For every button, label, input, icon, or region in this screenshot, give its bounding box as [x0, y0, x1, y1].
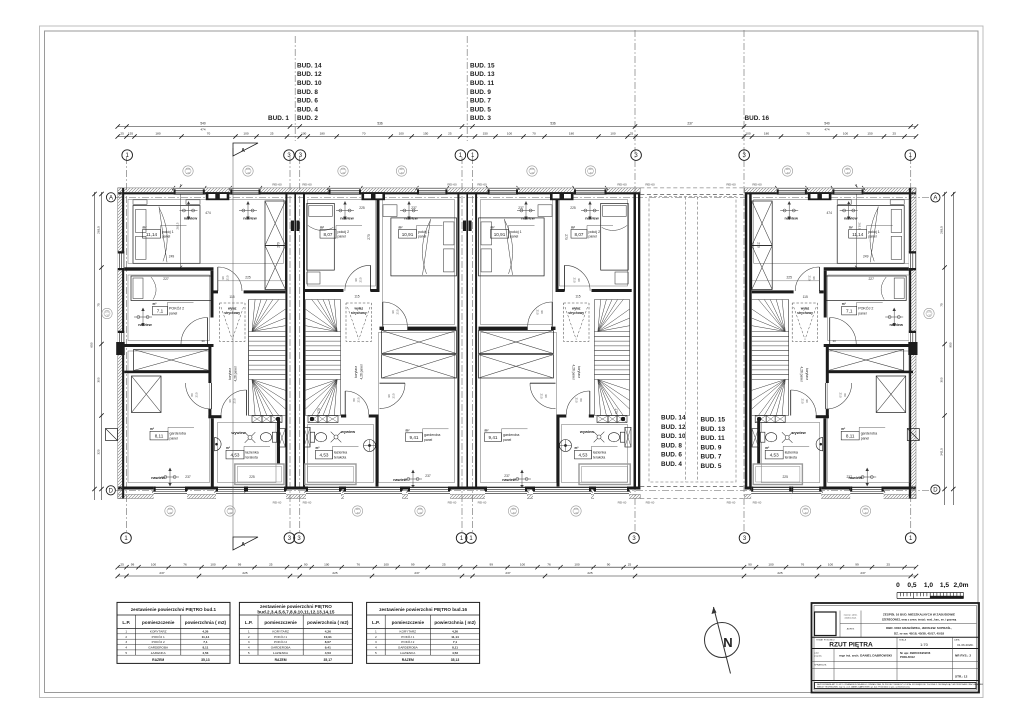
svg-text:WIEDZY TECHNICZNEJ. mgr inż. a: WIEDZY TECHNICZNEJ. mgr inż. arch. DANIE… — [817, 686, 910, 689]
svg-text:nawiew: nawiew — [889, 323, 903, 327]
svg-text:wyłaz: wyłaz — [354, 307, 364, 311]
svg-text:panel: panel — [858, 312, 867, 316]
svg-text:170: 170 — [317, 408, 321, 414]
svg-text:90: 90 — [304, 562, 308, 566]
svg-text:2,0m: 2,0m — [953, 582, 968, 589]
svg-text:90: 90 — [544, 394, 548, 398]
svg-text:BUD. 8: BUD. 8 — [297, 89, 318, 96]
svg-text:wywiew: wywiew — [340, 430, 355, 434]
svg-text:210: 210 — [801, 398, 805, 403]
svg-text:249: 249 — [863, 255, 869, 259]
svg-text:pokój 2: pokój 2 — [589, 230, 601, 234]
svg-text:80: 80 — [579, 398, 583, 402]
svg-text:terakota: terakota — [246, 456, 258, 460]
svg-text:nawiew: nawiew — [844, 217, 858, 221]
svg-text:projektu: projektu — [814, 655, 823, 658]
svg-text:237: 237 — [185, 475, 191, 479]
svg-text:100: 100 — [384, 562, 389, 566]
svg-text:garderoba: garderoba — [861, 432, 877, 436]
svg-text:25: 25 — [628, 562, 632, 566]
svg-text:SZEREGOWEJ, wraz z zewn. insta: SZEREGOWEJ, wraz z zewn. instal.: wod., … — [882, 618, 957, 622]
svg-text:panel: panel — [861, 437, 870, 441]
svg-text:powierzchnia ( m2): powierzchnia ( m2) — [185, 620, 227, 625]
svg-text:237: 237 — [505, 571, 510, 575]
svg-text:11,14: 11,14 — [202, 635, 210, 639]
svg-text:180: 180 — [155, 132, 160, 136]
svg-text:m²: m² — [841, 427, 845, 431]
svg-text:474: 474 — [824, 128, 829, 132]
svg-text:BUD. 6: BUD. 6 — [661, 452, 682, 459]
svg-text:N: N — [723, 635, 732, 650]
svg-text:BUD. 16: BUD. 16 — [745, 115, 770, 122]
svg-text:mgr inż. arch. DANIEL DĄBROWSK: mgr inż. arch. DANIEL DĄBROWSKI — [839, 653, 892, 657]
svg-text:łazienka: łazienka — [593, 451, 606, 455]
svg-text:8,07: 8,07 — [575, 232, 584, 237]
svg-text:237: 237 — [504, 474, 510, 478]
svg-text:1,5: 1,5 — [940, 582, 949, 589]
svg-text:100: 100 — [168, 507, 173, 511]
svg-text:m²: m² — [491, 225, 495, 229]
svg-text:4,26 panel: 4,26 panel — [234, 366, 238, 381]
svg-text:POKÓJ 2: POKÓJ 2 — [169, 306, 184, 311]
svg-text:3: 3 — [248, 640, 250, 644]
svg-text:panel: panel — [589, 235, 598, 239]
svg-text:474: 474 — [826, 211, 832, 215]
svg-text:garderoba: garderoba — [503, 433, 519, 437]
svg-text:łazienka: łazienka — [334, 451, 347, 455]
svg-text:+30: +30 — [418, 511, 423, 515]
svg-text:2: 2 — [375, 635, 377, 639]
svg-text:zestawienie powierzchni PIĘTRO: zestawienie powierzchni PIĘTRO bud.16 — [379, 607, 467, 612]
svg-text:225: 225 — [245, 276, 251, 280]
svg-text:pomieszczenie: pomieszczenie — [392, 620, 425, 625]
svg-text:m²: m² — [143, 225, 147, 229]
svg-text:155: 155 — [128, 132, 133, 136]
svg-text:4,53: 4,53 — [452, 651, 458, 655]
svg-text:panel: panel — [503, 438, 512, 442]
svg-text:BUD. 12: BUD. 12 — [661, 424, 686, 431]
svg-text:1: 1 — [375, 630, 377, 634]
svg-text:DZ. nr ew. 45/18, 45/38, 45/17: DZ. nr ew. 45/18, 45/38, 45/17, 45/18 — [894, 631, 944, 635]
svg-text:panel: panel — [424, 438, 433, 442]
svg-text:100: 100 — [399, 132, 404, 136]
svg-text:5: 5 — [125, 651, 127, 655]
svg-text:zestawienie powierzchni PIĘTRO: zestawienie powierzchni PIĘTRO bud.1 — [131, 607, 217, 612]
svg-text:270: 270 — [277, 242, 281, 248]
svg-text:autor: autor — [814, 652, 819, 655]
svg-text:474: 474 — [205, 211, 211, 215]
svg-text:3: 3 — [375, 640, 377, 644]
svg-text:25: 25 — [630, 132, 634, 136]
svg-text:100: 100 — [803, 507, 808, 511]
svg-text:536: 536 — [377, 121, 383, 125]
svg-text:BUD. 14: BUD. 14 — [661, 415, 686, 422]
svg-text:powierzchnia ( m2): powierzchnia ( m2) — [434, 620, 476, 625]
svg-text:terakota: terakota — [334, 456, 346, 460]
svg-text:m²: m² — [571, 225, 575, 229]
svg-text:KORYTARZ: KORYTARZ — [150, 630, 167, 634]
svg-text:+30: +30 — [845, 171, 850, 175]
svg-text:BUD. 13: BUD. 13 — [701, 426, 726, 433]
svg-text:terakota: terakota — [785, 456, 797, 460]
svg-text:A: A — [933, 196, 937, 202]
svg-text:powierzchnia ( m2): powierzchnia ( m2) — [307, 620, 349, 625]
svg-text:210: 210 — [573, 277, 577, 282]
svg-text:REI-60: REI-60 — [447, 182, 457, 186]
svg-text:11,14: 11,14 — [451, 635, 459, 639]
svg-text:L.P.: L.P. — [245, 620, 253, 625]
svg-text:+30: +30 — [785, 171, 790, 175]
svg-text:225: 225 — [359, 206, 365, 210]
svg-text:320: 320 — [97, 449, 101, 454]
svg-text:RZUT PIĘTRA: RZUT PIĘTRA — [829, 642, 873, 649]
svg-text:25: 25 — [886, 562, 890, 566]
svg-text:1,0: 1,0 — [924, 582, 933, 589]
svg-text:225: 225 — [570, 206, 576, 210]
svg-text:REI-60: REI-60 — [272, 182, 282, 186]
svg-text:pomieszczenie: pomieszczenie — [264, 620, 297, 625]
svg-text:BUD. 10: BUD. 10 — [297, 80, 322, 87]
svg-text:SPRAWDZIŁ: SPRAWDZIŁ — [814, 664, 827, 667]
svg-text:100: 100 — [530, 167, 535, 171]
svg-text:210: 210 — [195, 392, 199, 397]
svg-text:POKÓJ 1: POKÓJ 1 — [152, 634, 165, 639]
svg-text:10,91: 10,91 — [494, 232, 506, 237]
svg-text:540: 540 — [200, 121, 206, 125]
svg-text:SKALA: SKALA — [899, 638, 907, 641]
svg-text:536: 536 — [550, 121, 556, 125]
svg-text:8,11: 8,11 — [452, 646, 458, 650]
svg-text:strychowy: strychowy — [351, 311, 367, 315]
svg-text:m²: m² — [150, 427, 154, 431]
svg-text:100: 100 — [843, 132, 848, 136]
svg-text:270: 270 — [757, 242, 761, 248]
svg-text:100: 100 — [399, 167, 404, 171]
svg-text:150: 150 — [483, 132, 488, 136]
svg-text:540: 540 — [824, 121, 830, 125]
svg-text:REI-60: REI-60 — [273, 500, 282, 504]
svg-text:300: 300 — [97, 377, 101, 382]
svg-text:225: 225 — [242, 571, 247, 575]
svg-text:REI-60: REI-60 — [477, 182, 487, 186]
svg-text:90: 90 — [812, 276, 816, 280]
svg-text:nazwa i adres: nazwa i adres — [844, 614, 858, 617]
svg-text:D: D — [933, 488, 938, 494]
svg-text:+30: +30 — [341, 171, 346, 175]
svg-text:100: 100 — [863, 507, 868, 511]
svg-text:m²: m² — [399, 225, 403, 229]
svg-text:BUD. 10: BUD. 10 — [661, 433, 686, 440]
svg-text:BUD. 9: BUD. 9 — [701, 444, 722, 451]
svg-text:7,1: 7,1 — [846, 309, 853, 314]
svg-text:100: 100 — [105, 310, 110, 314]
svg-text:GARDEROBA: GARDEROBA — [271, 646, 292, 650]
svg-text:1: 1 — [248, 630, 250, 634]
svg-text:DATA: DATA — [954, 638, 960, 641]
svg-text:100: 100 — [418, 507, 423, 511]
svg-text:225: 225 — [587, 571, 592, 575]
svg-text:nawiew: nawiew — [404, 217, 418, 221]
svg-text:pokój 1: pokój 1 — [162, 230, 174, 234]
svg-text:75: 75 — [97, 303, 101, 307]
svg-text:99: 99 — [238, 562, 242, 566]
svg-text:+30: +30 — [530, 171, 535, 175]
svg-text:1: 1 — [125, 630, 127, 634]
svg-text:POKÓJ 1: POKÓJ 1 — [274, 634, 287, 639]
svg-text:263,5: 263,5 — [176, 222, 180, 229]
svg-text:4: 4 — [125, 646, 127, 650]
svg-text:nawiew: nawiew — [393, 478, 407, 482]
svg-text:90: 90 — [540, 310, 544, 314]
svg-text:263,5: 263,5 — [858, 223, 862, 230]
svg-text:pokój 1: pokój 1 — [418, 230, 430, 234]
svg-text:L.P.: L.P. — [122, 620, 130, 625]
svg-text:99: 99 — [411, 562, 415, 566]
svg-text:+30: +30 — [168, 511, 173, 515]
svg-text:4: 4 — [375, 646, 377, 650]
svg-text:225: 225 — [786, 276, 792, 280]
svg-text:90: 90 — [607, 562, 611, 566]
svg-text:210: 210 — [226, 275, 230, 280]
svg-text:210: 210 — [536, 309, 540, 314]
svg-text:0: 0 — [896, 582, 900, 589]
svg-text:BUD. 13: BUD. 13 — [470, 71, 495, 78]
svg-text:4,53: 4,53 — [231, 453, 240, 458]
svg-text:100: 100 — [785, 167, 790, 171]
svg-text:90: 90 — [354, 278, 358, 282]
svg-text:263,5: 263,5 — [97, 226, 101, 234]
svg-text:strychowy: strychowy — [224, 311, 240, 315]
svg-text:BUD. 11: BUD. 11 — [701, 435, 726, 442]
svg-text:BUD. 7: BUD. 7 — [701, 454, 722, 461]
svg-text:99: 99 — [131, 562, 135, 566]
svg-text:8,07: 8,07 — [325, 640, 331, 644]
svg-text:REI-60: REI-60 — [448, 500, 457, 504]
svg-text:RAZEM: RAZEM — [275, 658, 287, 662]
svg-text:BUD. 12: BUD. 12 — [297, 71, 322, 78]
svg-text:4,26: 4,26 — [202, 630, 208, 634]
svg-text:225: 225 — [782, 475, 788, 479]
svg-text:210: 210 — [396, 309, 400, 314]
svg-text:76: 76 — [356, 562, 360, 566]
svg-text:100: 100 — [511, 507, 516, 511]
svg-text:10,91: 10,91 — [402, 232, 414, 237]
svg-text:35,17: 35,17 — [324, 658, 333, 662]
svg-text:panel: panel — [868, 235, 877, 239]
svg-text:+30: +30 — [511, 511, 516, 515]
svg-text:11,14: 11,14 — [146, 232, 158, 237]
svg-text:+30: +30 — [588, 171, 593, 175]
svg-text:BUD. 2: BUD. 2 — [297, 115, 318, 122]
svg-text:210: 210 — [359, 277, 363, 282]
svg-text:0,5: 0,5 — [907, 582, 916, 589]
svg-text:korytarz: korytarz — [805, 368, 809, 380]
svg-text:nawiew: nawiew — [151, 476, 165, 480]
svg-text:237: 237 — [414, 571, 419, 575]
svg-text:panel: panel — [170, 437, 179, 441]
svg-text:237: 237 — [425, 474, 431, 478]
svg-text:210: 210 — [839, 392, 843, 397]
svg-text:25: 25 — [270, 132, 274, 136]
svg-text:950: 950 — [948, 342, 952, 347]
svg-text:76: 76 — [183, 562, 187, 566]
svg-text:wywiew: wywiew — [230, 431, 245, 435]
svg-text:10,91: 10,91 — [324, 635, 332, 639]
svg-text:garderoba: garderoba — [170, 432, 186, 436]
svg-text:76: 76 — [547, 562, 551, 566]
svg-text:REI-60: REI-60 — [646, 500, 655, 504]
svg-text:237: 237 — [687, 121, 693, 125]
svg-text:BUD. 14: BUD. 14 — [297, 62, 322, 69]
svg-text:100: 100 — [151, 562, 156, 566]
svg-text:3: 3 — [125, 640, 127, 644]
svg-text:strychowy: strychowy — [797, 311, 813, 315]
svg-text:25: 25 — [892, 132, 896, 136]
svg-text:REI-60: REI-60 — [618, 500, 627, 504]
svg-text:90: 90 — [391, 310, 395, 314]
svg-text:4,26: 4,26 — [452, 630, 458, 634]
svg-text:225: 225 — [249, 475, 255, 479]
svg-text:8,07: 8,07 — [324, 232, 333, 237]
svg-text:m²: m² — [316, 446, 320, 450]
svg-text:7,1: 7,1 — [157, 309, 164, 314]
svg-text:90: 90 — [228, 399, 232, 403]
svg-text:11,14: 11,14 — [852, 232, 864, 237]
svg-text:01.06.2020r.: 01.06.2020r. — [957, 643, 974, 647]
svg-text:m²: m² — [575, 446, 579, 450]
svg-text:180: 180 — [764, 132, 769, 136]
svg-text:REI-60: REI-60 — [303, 500, 312, 504]
svg-text:35,13: 35,13 — [451, 658, 460, 662]
svg-text:+30: +30 — [246, 171, 251, 175]
svg-text:80: 80 — [352, 398, 356, 402]
svg-text:m²: m² — [842, 302, 846, 306]
svg-text:REI-60: REI-60 — [752, 182, 762, 186]
svg-text:300: 300 — [940, 377, 944, 382]
svg-text:100: 100 — [301, 132, 306, 136]
svg-text:BUD. 7: BUD. 7 — [470, 98, 491, 105]
svg-text:REI-60: REI-60 — [478, 500, 487, 504]
svg-text:100: 100 — [745, 132, 750, 136]
svg-text:KORYTARZ: KORYTARZ — [400, 630, 417, 634]
svg-text:75: 75 — [940, 303, 944, 307]
svg-text:5: 5 — [375, 651, 377, 655]
svg-text:REI-60: REI-60 — [727, 500, 736, 504]
svg-text:+30: +30 — [399, 171, 404, 175]
svg-text:30: 30 — [833, 339, 837, 343]
svg-text:227: 227 — [163, 277, 169, 281]
svg-text:POKÓJ 1: POKÓJ 1 — [401, 634, 414, 639]
svg-text:237: 237 — [518, 206, 524, 210]
svg-text:m²: m² — [153, 302, 157, 306]
svg-text:D: D — [109, 488, 114, 494]
svg-text:BUD. 8: BUD. 8 — [661, 442, 682, 449]
svg-text:pokój 1: pokój 1 — [868, 230, 880, 234]
svg-text:76: 76 — [801, 562, 805, 566]
svg-text:nawiew: nawiew — [138, 323, 152, 327]
svg-text:korytarz: korytarz — [577, 366, 581, 378]
svg-text:25: 25 — [269, 562, 273, 566]
svg-text:100: 100 — [210, 562, 215, 566]
svg-text:227: 227 — [868, 277, 874, 281]
svg-text:99: 99 — [489, 562, 493, 566]
svg-text:łazienka: łazienka — [246, 451, 259, 455]
svg-text:nawiew: nawiew — [184, 217, 198, 221]
svg-text:100: 100 — [507, 132, 512, 136]
svg-text:9,41: 9,41 — [489, 435, 498, 440]
svg-text:+30: +30 — [105, 313, 110, 317]
svg-text:pomieszczenie: pomieszczenie — [142, 620, 175, 625]
svg-text:łazienka: łazienka — [785, 451, 798, 455]
svg-text:650: 650 — [90, 342, 94, 347]
svg-text:100: 100 — [243, 132, 248, 136]
svg-text:RAZEM: RAZEM — [152, 658, 164, 662]
svg-text:270: 270 — [367, 234, 371, 240]
svg-text:100: 100 — [520, 562, 525, 566]
svg-text:100: 100 — [574, 507, 579, 511]
svg-text:BUD. 1: BUD. 1 — [268, 115, 289, 122]
svg-text:wywiew: wywiew — [579, 430, 594, 434]
svg-text:70: 70 — [806, 132, 810, 136]
svg-text:4,53: 4,53 — [320, 453, 329, 458]
svg-text:237: 237 — [159, 571, 164, 575]
svg-text:+30: +30 — [574, 511, 579, 515]
svg-text:4,26 panel: 4,26 panel — [572, 365, 576, 380]
svg-text:90: 90 — [748, 562, 752, 566]
svg-text:115: 115 — [575, 295, 580, 299]
svg-text:4,53: 4,53 — [202, 651, 208, 655]
svg-text:99: 99 — [855, 562, 859, 566]
svg-text:RAZEM: RAZEM — [402, 658, 414, 662]
svg-text:100: 100 — [610, 132, 615, 136]
svg-text:70: 70 — [207, 132, 211, 136]
svg-text:BUD. 5: BUD. 5 — [470, 106, 491, 113]
svg-text:25: 25 — [448, 132, 452, 136]
svg-text:9,41: 9,41 — [325, 646, 331, 650]
svg-text:obiektu bud.: obiektu bud. — [845, 616, 857, 619]
svg-text:BUD. 5: BUD. 5 — [701, 463, 722, 470]
svg-text:BUD. 3: BUD. 3 — [470, 115, 491, 122]
svg-text:STR.: 12: STR.: 12 — [955, 675, 968, 679]
svg-text:PODL/0012: PODL/0012 — [900, 655, 915, 659]
svg-text:237: 237 — [846, 475, 852, 479]
svg-text:REI-60: REI-60 — [726, 182, 736, 186]
svg-text:263,5: 263,5 — [940, 226, 944, 234]
svg-text:115: 115 — [803, 295, 808, 299]
svg-text:BUD. 6: BUD. 6 — [297, 98, 318, 105]
svg-text:4,53: 4,53 — [770, 453, 779, 458]
svg-text:NA PODSTAWIE ART. 20 UST. 4 PR: NA PODSTAWIE ART. 20 UST. 4 PRAWA BUDOWL… — [817, 683, 983, 686]
svg-text:100: 100 — [588, 167, 593, 171]
svg-text:BUD. 15: BUD. 15 — [470, 62, 495, 69]
svg-text:210: 210 — [808, 275, 812, 280]
svg-text:ŁAZIENKA: ŁAZIENKA — [273, 651, 289, 655]
svg-text:237: 237 — [860, 571, 865, 575]
svg-text:REI-60: REI-60 — [645, 182, 655, 186]
svg-text:wywiew: wywiew — [791, 431, 806, 435]
svg-text:5: 5 — [248, 651, 250, 655]
svg-text:7,1: 7,1 — [453, 640, 458, 644]
svg-text:nawiew: nawiew — [784, 217, 798, 221]
svg-text:7,1: 7,1 — [203, 640, 208, 644]
svg-text:270: 270 — [564, 234, 568, 240]
svg-text:2: 2 — [125, 635, 127, 639]
svg-text:4,26 panel: 4,26 panel — [800, 367, 804, 382]
svg-text:100: 100 — [246, 167, 251, 171]
svg-text:nawiew: nawiew — [340, 217, 354, 221]
svg-text:1:70: 1:70 — [920, 642, 929, 647]
svg-text:4,26 panel: 4,26 panel — [360, 364, 364, 379]
